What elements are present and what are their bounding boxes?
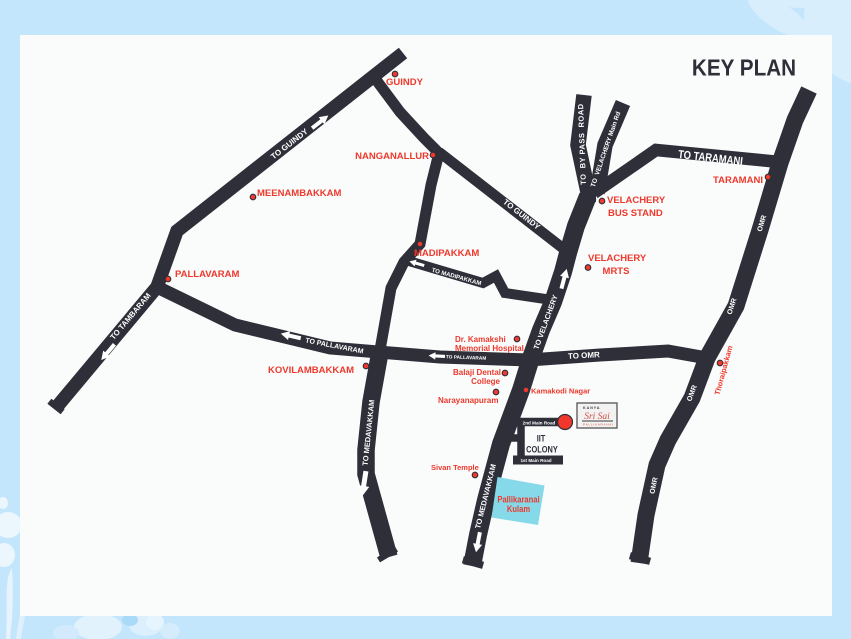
svg-text:MADIPAKKAM: MADIPAKKAM	[414, 248, 479, 259]
svg-text:Sivan Temple: Sivan Temple	[431, 463, 479, 472]
svg-text:KANYA: KANYA	[583, 406, 600, 410]
svg-text:TARAMANI: TARAMANI	[713, 175, 763, 186]
svg-text:COLONY: COLONY	[526, 444, 558, 455]
svg-text:Kamakodi Nagar: Kamakodi Nagar	[531, 387, 590, 396]
svg-text:PALLAVARAM: PALLAVARAM	[175, 269, 239, 280]
svg-text:KOVILAMBAKKAM: KOVILAMBAKKAM	[268, 365, 354, 376]
svg-text:PALLIKARANAI: PALLIKARANAI	[583, 423, 614, 427]
svg-text:1st Main Road: 1st Main Road	[520, 458, 551, 463]
svg-text:IIT: IIT	[537, 433, 546, 444]
svg-text:NANGANALLUR: NANGANALLUR	[355, 151, 429, 162]
svg-text:Narayanapuram: Narayanapuram	[438, 396, 498, 405]
svg-text:College: College	[471, 377, 500, 386]
svg-text:VELACHERY: VELACHERY	[607, 195, 666, 206]
svg-text:GUINDY: GUINDY	[386, 77, 424, 88]
svg-text:2nd Main Road: 2nd Main Road	[523, 421, 556, 426]
svg-text:VELACHERY: VELACHERY	[588, 253, 647, 264]
svg-text:BUS STAND: BUS STAND	[608, 208, 663, 219]
svg-text:Kulam: Kulam	[507, 503, 531, 514]
svg-text:Memorial Hospital: Memorial Hospital	[455, 344, 524, 353]
svg-text:MEENAMBAKKAM: MEENAMBAKKAM	[257, 188, 342, 199]
svg-text:KEY PLAN: KEY PLAN	[692, 54, 796, 81]
svg-text:Dr. Kamakshi: Dr. Kamakshi	[455, 335, 506, 344]
svg-text:MRTS: MRTS	[603, 266, 630, 277]
svg-text:Balaji Dental: Balaji Dental	[453, 368, 501, 377]
svg-text:TO OMR: TO OMR	[568, 350, 601, 361]
